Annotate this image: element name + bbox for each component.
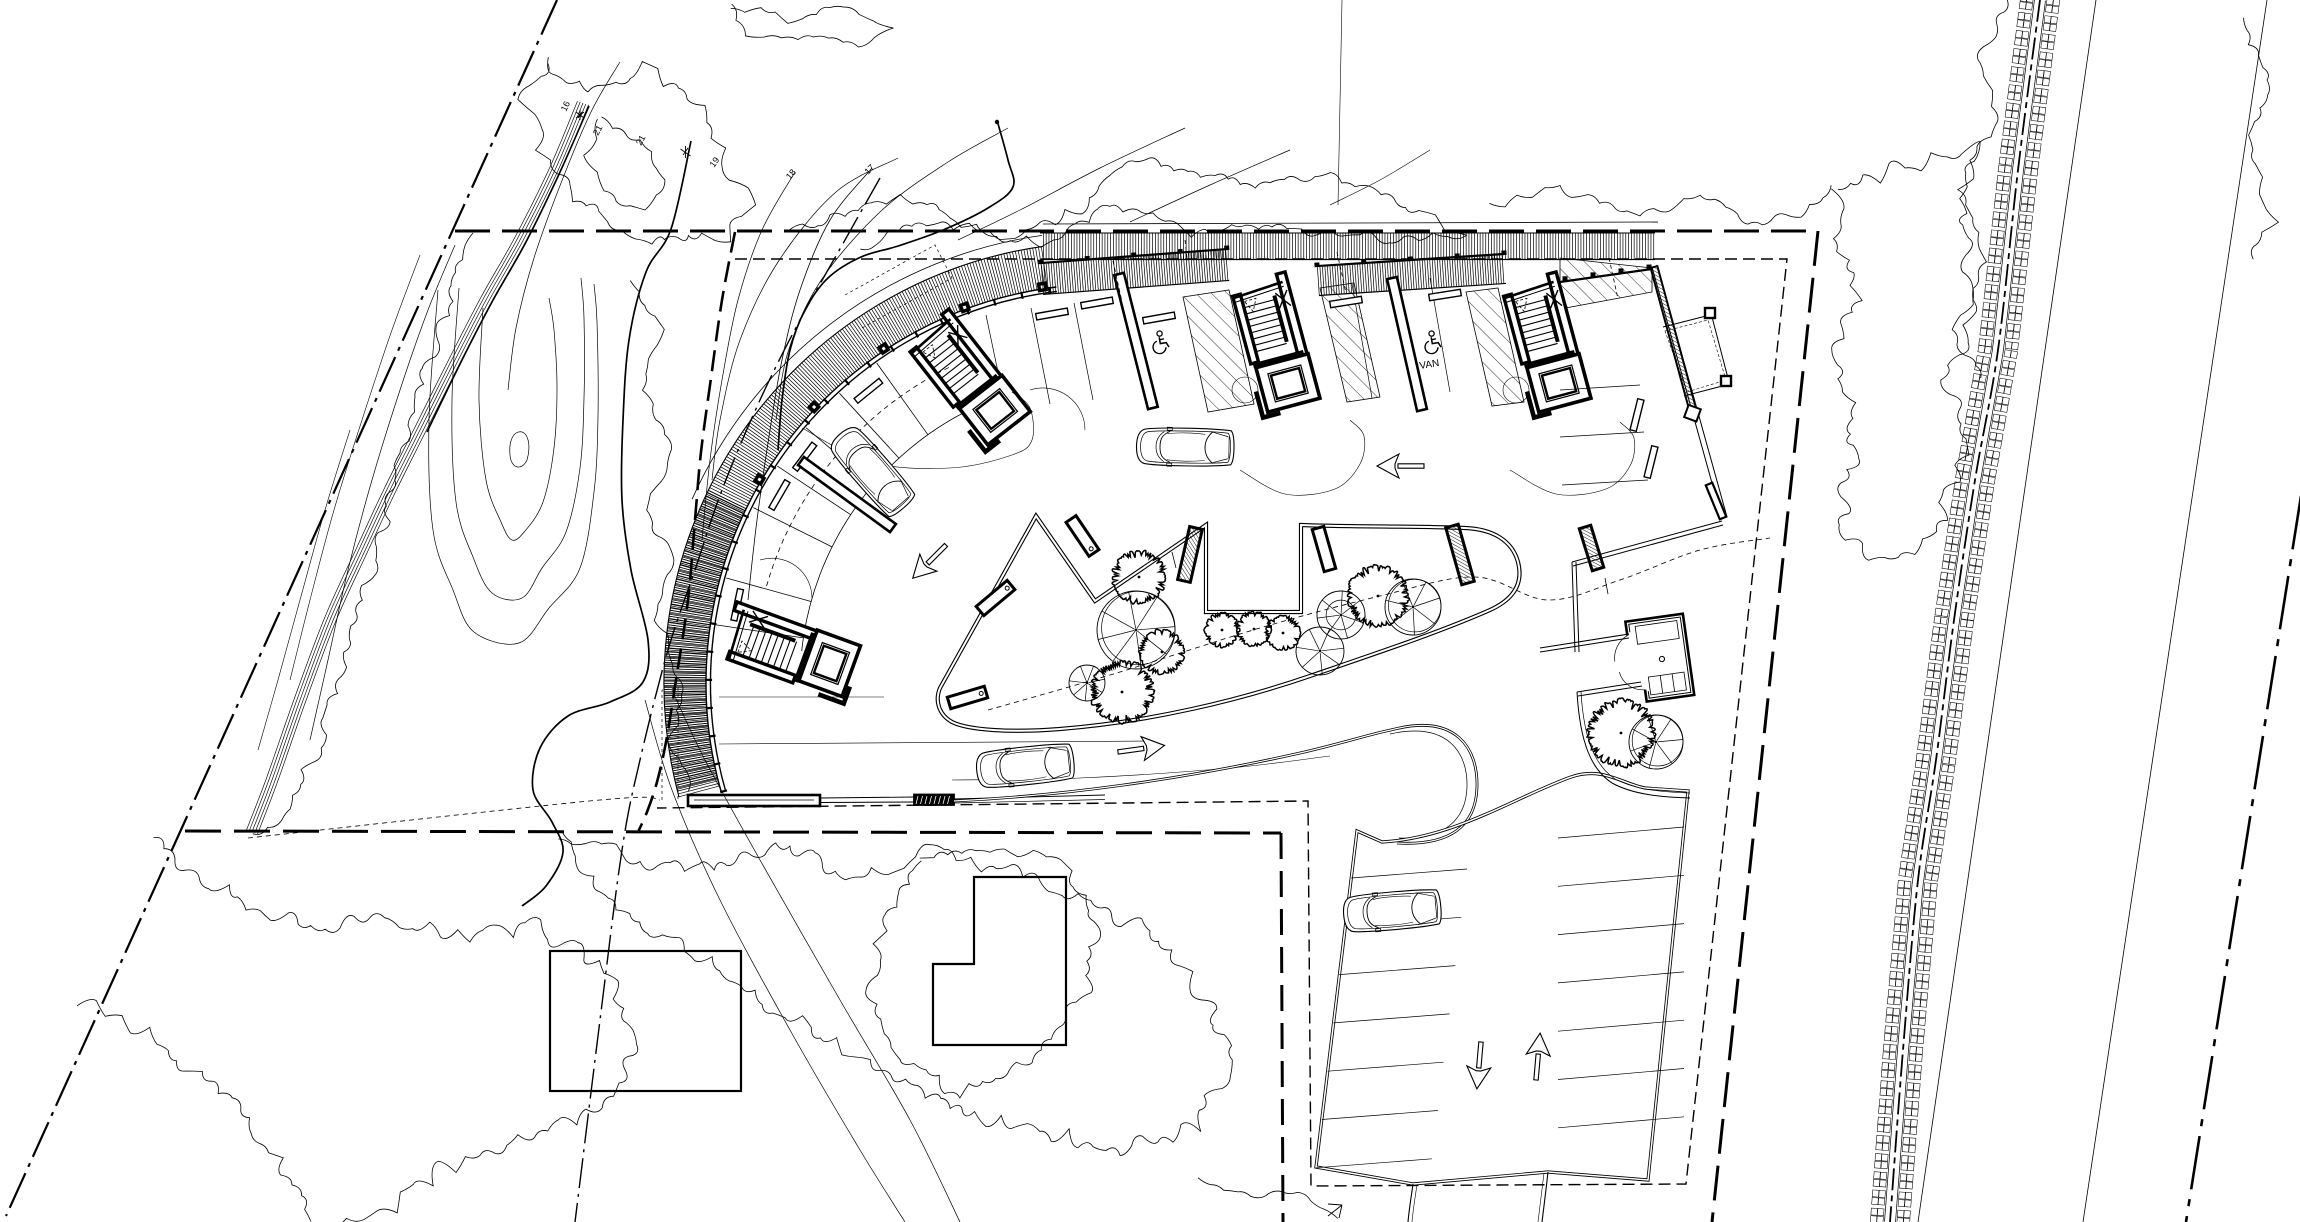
svg-text:18: 18 (784, 167, 798, 181)
svg-text:16: 16 (559, 100, 572, 113)
svg-text:21: 21 (591, 123, 605, 137)
svg-text:17: 17 (862, 162, 876, 176)
svg-text:VAN: VAN (1419, 358, 1440, 372)
svg-text:19: 19 (707, 155, 721, 169)
